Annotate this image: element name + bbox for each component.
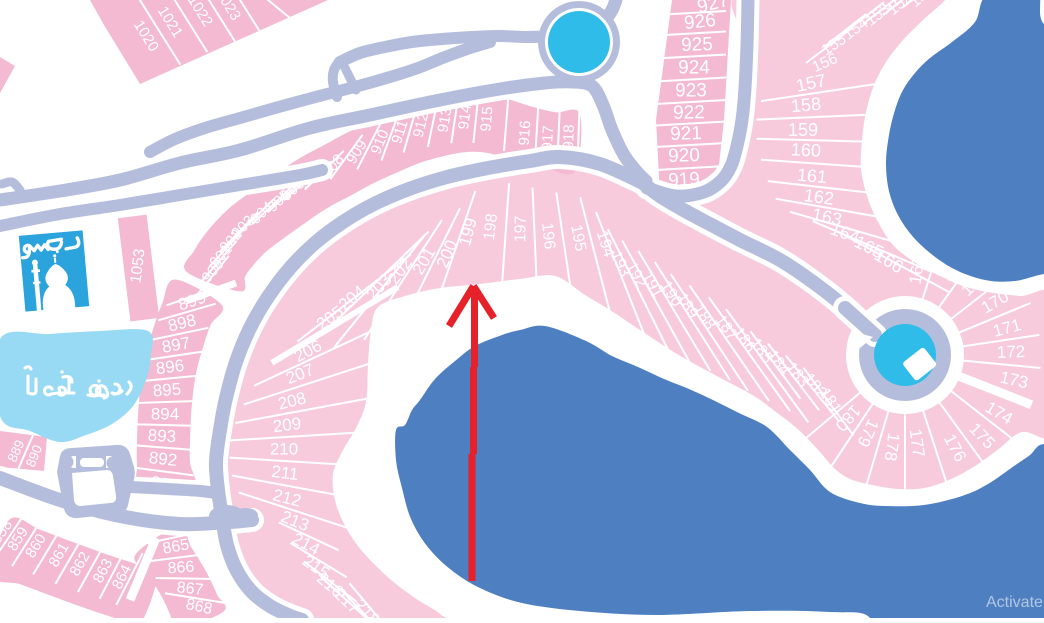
svg-text:211: 211 [270,462,299,484]
svg-text:172: 172 [996,342,1025,362]
svg-text:925: 925 [681,34,713,56]
svg-text:866: 866 [167,559,195,578]
svg-text:158: 158 [790,94,822,117]
svg-text:159: 159 [788,120,818,140]
svg-text:196: 196 [538,222,558,250]
svg-text:920: 920 [668,145,700,167]
svg-text:916: 916 [516,120,535,146]
svg-text:177: 177 [906,428,929,459]
svg-text:895: 895 [152,380,182,401]
svg-text:Activate: Activate [986,594,1043,611]
svg-text:924: 924 [678,58,710,79]
svg-text:209: 209 [272,414,302,436]
svg-text:198: 198 [481,213,501,242]
svg-text:161: 161 [796,165,828,188]
svg-text:160: 160 [790,139,821,161]
svg-text:178: 178 [881,432,904,463]
svg-text:167: 167 [906,255,929,286]
svg-text:922: 922 [673,102,705,124]
svg-text:197: 197 [512,215,529,242]
svg-text:162: 162 [803,185,836,209]
svg-text:210: 210 [270,440,298,459]
svg-text:923: 923 [675,81,707,102]
svg-text:893: 893 [147,426,176,446]
svg-text:915: 915 [477,106,496,132]
svg-text:896: 896 [155,356,185,378]
svg-text:892: 892 [148,448,178,470]
svg-text:894: 894 [151,405,179,424]
svg-text:921: 921 [670,123,702,145]
